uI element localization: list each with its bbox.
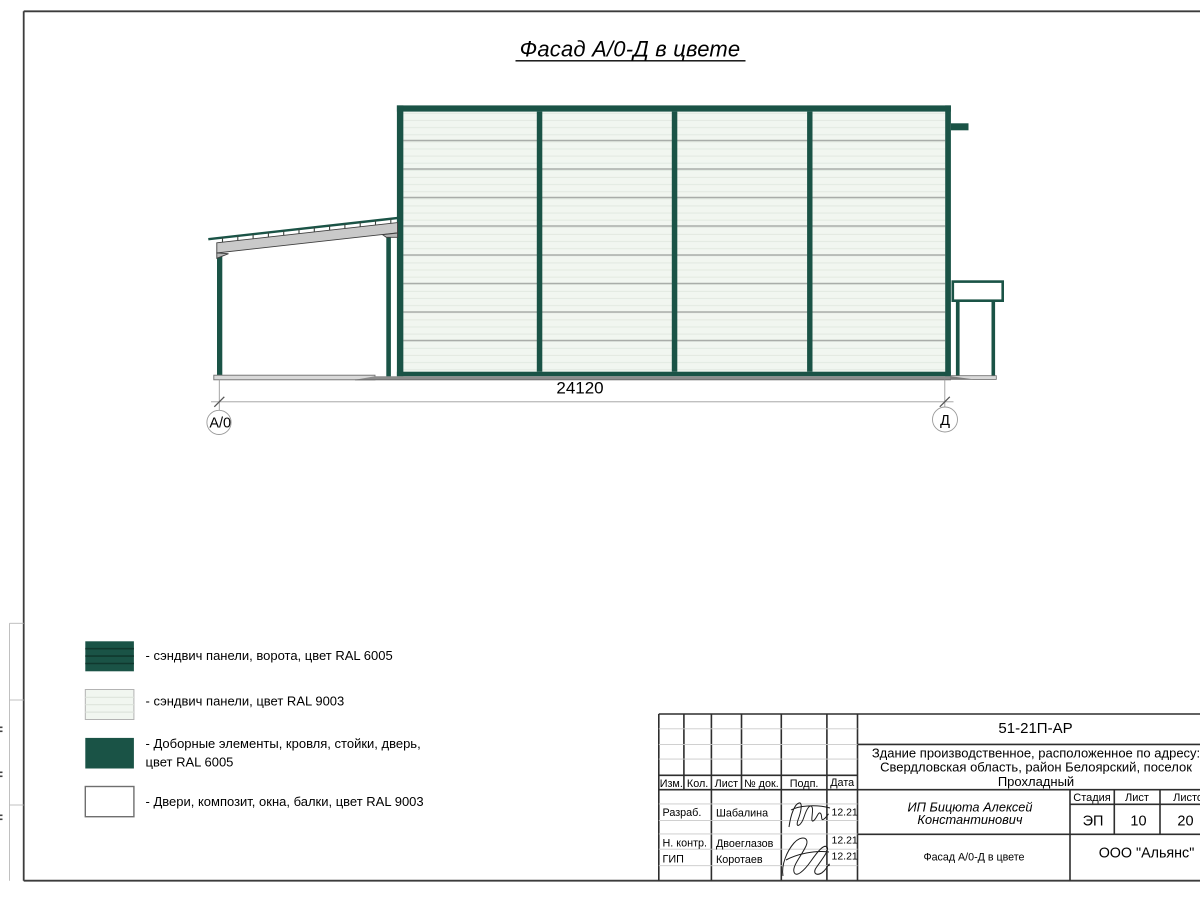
- svg-text:Разраб.: Разраб.: [663, 807, 702, 819]
- svg-text:Изм.: Изм.: [660, 778, 683, 790]
- svg-text:10: 10: [1130, 814, 1146, 830]
- svg-text:Д: Д: [940, 413, 950, 429]
- svg-text:Константинович: Константинович: [917, 812, 1023, 827]
- svg-text:24120: 24120: [556, 378, 603, 397]
- svg-text:Н. контр.: Н. контр.: [663, 837, 708, 849]
- svg-text:Фасад А/0-Д в цвете: Фасад А/0-Д в цвете: [520, 37, 741, 62]
- svg-text:Здание производственное, распо: Здание производственное, расположенное п…: [872, 746, 1200, 761]
- svg-text:ООО "Альянс": ООО "Альянс": [1099, 846, 1195, 862]
- svg-text:- Доборные элементы, кровля, с: - Доборные элементы, кровля, стойки, две…: [146, 736, 421, 751]
- svg-text:ЭП: ЭП: [1083, 814, 1104, 830]
- svg-text:- сэндвич панели, цвет RAL 900: - сэндвич панели, цвет RAL 9003: [146, 694, 345, 709]
- svg-text:Дата: Дата: [830, 777, 854, 789]
- svg-text:51-21П-АР: 51-21П-АР: [998, 720, 1072, 737]
- svg-text:Прохладный: Прохладный: [998, 774, 1074, 789]
- svg-text:Фасад А/0-Д в цвете: Фасад А/0-Д в цвете: [923, 851, 1024, 863]
- svg-text:Шабалина: Шабалина: [716, 808, 768, 820]
- svg-text:Лист: Лист: [1125, 792, 1149, 804]
- svg-text:Свердловская область, район Бе: Свердловская область, район Белоярский, …: [880, 760, 1192, 775]
- svg-text:Кол.: Кол.: [687, 778, 708, 790]
- svg-text:12.21: 12.21: [832, 807, 858, 819]
- svg-text:20: 20: [1177, 814, 1193, 830]
- svg-text:Двоеглазов: Двоеглазов: [716, 838, 774, 850]
- svg-text:№ док.: № док.: [744, 778, 779, 790]
- svg-text:12.21: 12.21: [832, 851, 858, 863]
- svg-text:Подп.: Подп.: [790, 778, 819, 790]
- svg-text:- сэндвич панели, ворота, цвет: - сэндвич панели, ворота, цвет RAL 6005: [146, 648, 393, 663]
- svg-text:12.21: 12.21: [832, 835, 858, 847]
- svg-text:цвет RAL 6005: цвет RAL 6005: [146, 754, 234, 769]
- svg-text:Коротаев: Коротаев: [716, 854, 763, 866]
- svg-text:ГИП: ГИП: [663, 853, 684, 865]
- svg-text:Листов: Листов: [1173, 792, 1200, 804]
- svg-text:Стадия: Стадия: [1073, 792, 1111, 804]
- svg-text:Лист: Лист: [715, 778, 739, 790]
- svg-text:- Двери, композит, окна, балки: - Двери, композит, окна, балки, цвет RAL…: [146, 794, 424, 809]
- svg-text:А/0: А/0: [209, 416, 231, 432]
